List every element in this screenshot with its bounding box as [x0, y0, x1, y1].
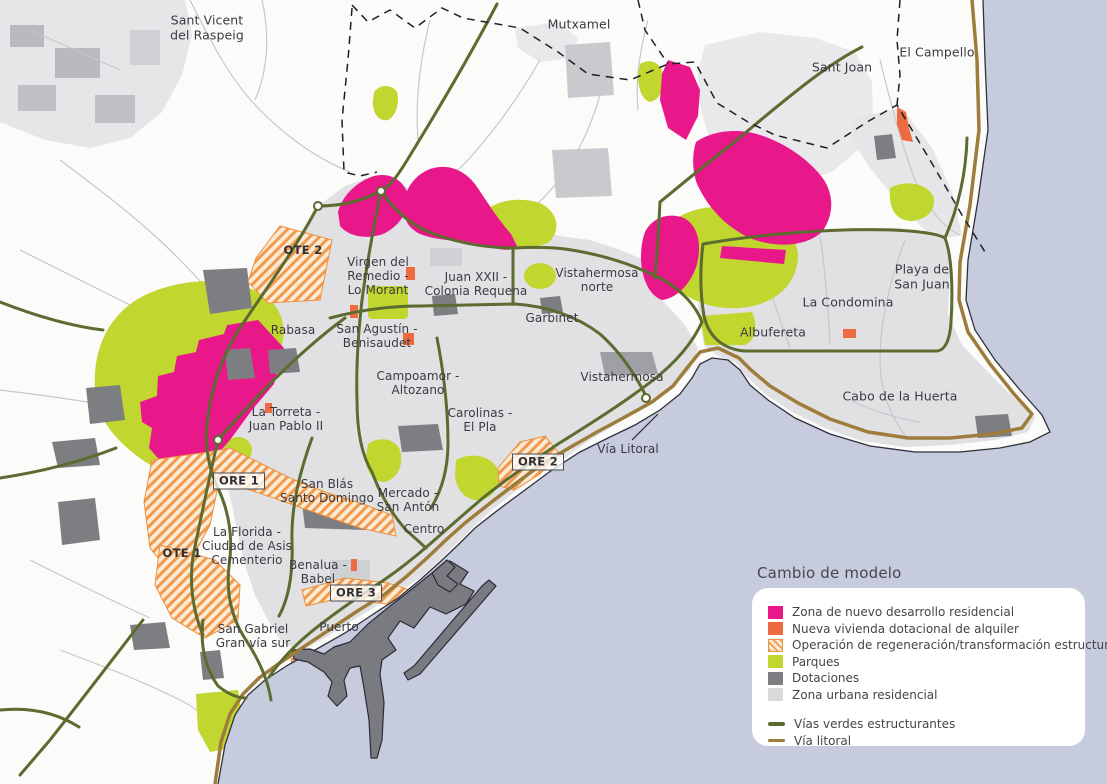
light-grey-swatch [768, 688, 783, 701]
legend-item-label: Operación de regeneración/transformación… [792, 638, 1107, 652]
legend-line-label: Vías verdes estructurantes [794, 717, 955, 731]
brown-line-swatch [768, 739, 785, 743]
legend-item-regeneration: Operación de regeneración/transformación… [768, 638, 1071, 652]
urban-plan-map: Sant Vicent del Raspeig Mutxamel Sant Jo… [0, 0, 1107, 784]
orange-swatch [768, 622, 783, 635]
hatched-swatch [768, 639, 783, 652]
legend-item-label: Zona de nuevo desarrollo residencial [792, 605, 1014, 619]
legend-item-label: Parques [792, 655, 840, 669]
dark-grey-swatch [768, 672, 783, 685]
legend-item-dotational-housing: Nueva vivienda dotacional de alquiler [768, 622, 1071, 636]
legend-line-green-ways: Vías verdes estructurantes [768, 717, 1071, 731]
legend-panel: Zona de nuevo desarrollo residencial Nue… [752, 588, 1085, 746]
legend-item-label: Dotaciones [792, 671, 859, 685]
green-swatch [768, 655, 783, 668]
pink-swatch [768, 606, 783, 619]
legend-title: Cambio de modelo [757, 564, 902, 582]
legend-line-label: Vía litoral [794, 734, 851, 748]
legend-item-dotaciones: Dotaciones [768, 671, 1071, 685]
legend-item-new-development: Zona de nuevo desarrollo residencial [768, 605, 1071, 619]
olive-line-swatch [768, 722, 785, 726]
legend-item-label: Nueva vivienda dotacional de alquiler [792, 622, 1019, 636]
legend-line-litoral: Vía litoral [768, 734, 1071, 748]
legend-item-parks: Parques [768, 655, 1071, 669]
legend-item-label: Zona urbana residencial [792, 688, 937, 702]
legend-item-urban-residential: Zona urbana residencial [768, 688, 1071, 702]
